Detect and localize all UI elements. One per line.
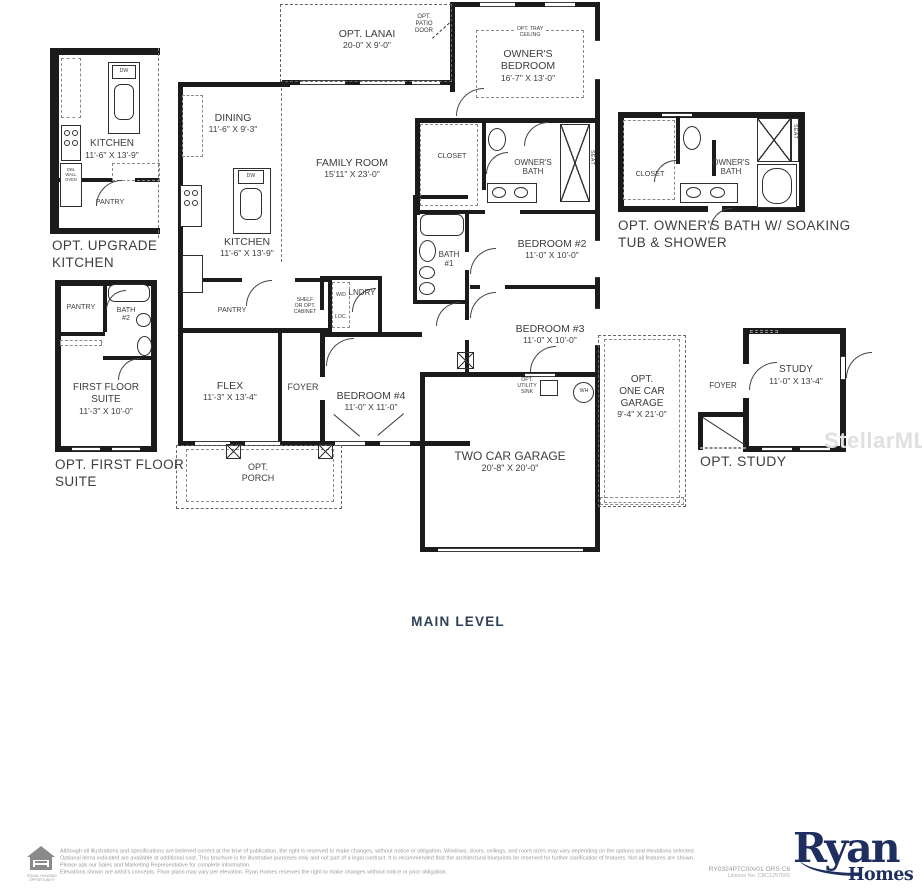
dashed-line <box>158 48 159 238</box>
wall-segment <box>103 356 153 360</box>
kitchen-label: KITCHEN 11'-6" X 13'-9" <box>220 236 274 259</box>
wall-segment <box>465 212 469 252</box>
door-swing-line <box>702 417 744 445</box>
shelf-or-opt-cabinet-label: SHELF OR OPT. CABINET <box>294 297 316 315</box>
annotation-line: CEILING <box>517 32 543 38</box>
room-name: SUITE <box>73 394 139 406</box>
wall-segment <box>57 332 105 336</box>
column-marker <box>757 118 791 162</box>
room-name: FAMILY ROOM <box>316 157 388 169</box>
room-dims: 11'-6" X 13'-9" <box>85 150 139 160</box>
fixture <box>419 240 436 262</box>
room-dims: 9'-4" X 21'-0" <box>617 409 667 419</box>
column-marker <box>560 124 590 202</box>
room-name: #2 <box>117 314 136 322</box>
window-marker <box>112 447 140 451</box>
door-arc <box>530 346 556 372</box>
equal-sign-icon <box>35 861 47 863</box>
room-name: OPT. LANAI <box>339 28 396 40</box>
opt-lanai-label: OPT. LANAI 20-0" X 9'-0" <box>339 28 396 51</box>
door-arc <box>436 302 460 326</box>
equal-housing-body <box>30 857 52 870</box>
dw-label: DW <box>120 68 129 74</box>
disclaimer-text: Elevations shown are artist's concepts. … <box>60 869 704 876</box>
annotation-line: GARAGE <box>617 398 667 410</box>
wall-segment <box>55 280 61 452</box>
dw-label: DW <box>247 173 256 179</box>
dashed-outline <box>623 120 675 200</box>
window-marker <box>545 2 575 7</box>
closet-label: CLOSET <box>438 152 467 160</box>
dashed-line <box>281 88 282 262</box>
room-name: OWNER'S <box>514 158 552 167</box>
equal-housing-roof <box>27 846 55 857</box>
opt-one-car-garage-label: OPT. ONE CAR GARAGE 9'-4" X 21'-0" <box>617 374 667 420</box>
annotation-line: OPT. <box>415 14 433 21</box>
burner-icon <box>72 140 78 146</box>
foyer-label: FOYER <box>287 382 318 393</box>
window-marker <box>595 240 600 278</box>
stellar-mls-watermark: StellarMLS <box>824 428 922 454</box>
ffs-bath2-label: BATH #2 <box>117 306 136 323</box>
caption-line: KITCHEN <box>52 255 157 272</box>
annotation-line: DOOR <box>415 28 433 35</box>
room-dims: 20'-8" X 20'-0" <box>454 463 565 474</box>
window-marker <box>841 356 845 380</box>
dashed-outline <box>332 282 350 328</box>
wd-label: W/D <box>336 292 346 298</box>
wall-segment <box>178 82 290 87</box>
fixture <box>514 187 528 198</box>
dashed-outline <box>61 58 81 118</box>
door-arc <box>118 358 140 380</box>
level-title: MAIN LEVEL <box>411 614 505 629</box>
fixture <box>686 187 701 198</box>
wall-segment <box>450 2 600 7</box>
wall-segment <box>465 270 469 320</box>
annotation-line: PATIO <box>415 21 433 28</box>
door-arc <box>326 338 354 366</box>
burner-icon <box>64 140 70 146</box>
opt-kitchen-label: KITCHEN 11'-6" X 13'-9" <box>85 138 139 160</box>
caption-line: OPT. FIRST FLOOR <box>55 457 184 474</box>
fixture <box>762 168 792 204</box>
dbl-wall-oven-label: DBL WALL OVEN <box>61 168 81 182</box>
bedroom2-label: BEDROOM #2 11'-0" X 10'-0" <box>518 238 587 261</box>
burner-icon <box>192 200 198 206</box>
room-name: BEDROOM <box>501 60 555 72</box>
room-name: BATH <box>439 250 460 259</box>
dashed-outline <box>182 95 203 157</box>
opt-upgrade-kitchen-caption: OPT. UPGRADE KITCHEN <box>52 238 157 272</box>
study-label: STUDY 11'-0" X 13'-4" <box>769 364 823 386</box>
room-name: STUDY <box>769 364 823 376</box>
room-name: KITCHEN <box>85 138 139 150</box>
flex-label: FLEX 11'-3" X 13'-4" <box>203 380 257 403</box>
door-swing-line <box>377 413 404 436</box>
window-marker <box>72 447 100 451</box>
annotation-line: OVEN <box>61 178 81 183</box>
opt-porch-label: OPT. PORCH <box>242 462 275 483</box>
room-name: FLEX <box>203 380 257 392</box>
fixture <box>240 188 262 220</box>
door-arc <box>524 122 548 146</box>
room-dims: 16'-7" X 13'-0" <box>501 73 555 83</box>
annotation-line: CABINET <box>294 309 316 315</box>
owners-bath-label: OWNER'S BATH <box>514 158 552 177</box>
dashed-outline <box>420 124 478 206</box>
wall-segment <box>698 412 748 417</box>
wall-segment <box>413 195 417 303</box>
wall-segment <box>50 48 160 55</box>
fixture <box>540 380 558 396</box>
room-dims: 11'-0" X 10'-0" <box>516 335 585 345</box>
column-marker <box>318 444 333 459</box>
wall-segment <box>415 118 599 123</box>
wall-segment <box>320 332 422 337</box>
room-name: BATH <box>712 167 750 176</box>
opt-tray-ceiling-label: OPT. TRAY CEILING <box>514 26 546 38</box>
room-name: BEDROOM #4 <box>337 390 406 402</box>
window-marker <box>480 2 515 7</box>
fixture <box>137 336 152 356</box>
room-name: DINING <box>209 112 258 124</box>
annotation-line: OPT. <box>617 374 667 386</box>
room-dims: 11'-0" X 13'-4" <box>769 376 823 386</box>
wall-segment <box>482 120 486 190</box>
room-name: BATH <box>514 167 552 176</box>
laundry-label: LNDRY <box>349 288 376 297</box>
window-marker <box>438 548 583 552</box>
opt-pantry-label: PANTRY <box>96 198 125 206</box>
first-floor-suite-label: FIRST FLOOR SUITE 11'-3" X 10'-0" <box>73 382 139 416</box>
column-marker <box>226 444 241 459</box>
room-dims: 15'11" X 23'-0" <box>316 169 388 179</box>
wall-segment <box>151 280 157 452</box>
bedroom3-label: BEDROOM #3 11'-0" X 10'-0" <box>516 323 585 346</box>
wall-segment <box>278 332 282 441</box>
room-name: BEDROOM #2 <box>518 238 587 250</box>
wall-segment <box>520 210 599 214</box>
burner-icon <box>184 200 190 206</box>
two-car-garage-label: TWO CAR GARAGE 20'-8" X 20'-0" <box>454 449 565 474</box>
pantry-label: PANTRY <box>218 306 247 314</box>
wall-segment <box>55 446 157 452</box>
column-marker <box>457 352 474 369</box>
annotation-line: PORCH <box>242 473 275 484</box>
room-dims: 11'-6" X 9'-3" <box>209 124 258 134</box>
wall-segment <box>743 328 749 364</box>
wall-segment <box>799 112 805 212</box>
fixture <box>420 214 464 236</box>
fixture <box>182 255 203 293</box>
room-dims: 11'-0" X 10'-0" <box>518 250 587 260</box>
room-dims: 11'-3" X 10'-0" <box>73 406 139 416</box>
plan-code-block: RY0324PTC00v01 ORS C6 License No. CBC125… <box>650 866 790 879</box>
dashed-outline <box>750 330 778 333</box>
caption-line: SUITE <box>55 474 184 491</box>
dining-label: DINING 11'-6" X 9'-3" <box>209 112 258 135</box>
disclaimer-paragraph-2: Elevations shown are artist's concepts. … <box>60 869 720 879</box>
opt-owners-bath-caption: OPT. OWNER'S BATH W/ SOAKING TUB & SHOWE… <box>618 218 851 252</box>
opt-patio-door-label: OPT. PATIO DOOR <box>415 14 433 35</box>
room-name: KITCHEN <box>220 236 274 248</box>
license-number: License No. CBC1257565 <box>650 873 790 879</box>
dashed-outline <box>600 497 684 505</box>
wall-segment <box>420 374 425 552</box>
room-name: OWNER'S <box>501 48 555 60</box>
ryan-homes-logo: Ryan Homes <box>793 828 921 886</box>
plan-code: RY0324PTC00v01 ORS C6 <box>650 866 790 873</box>
brand-homes: Homes <box>848 865 913 885</box>
room-name: FIRST FLOOR <box>73 382 139 394</box>
bedroom4-label: BEDROOM #4 11'-0" X 11'-0" <box>337 390 406 413</box>
dashed-outline <box>60 340 102 346</box>
caption-line: OPT. UPGRADE <box>52 238 157 255</box>
fixture <box>683 126 701 150</box>
caption-line: TUB & SHOWER <box>618 235 851 252</box>
door-swing-line <box>333 414 360 437</box>
wall-segment <box>420 372 599 377</box>
annotation-line: ONE CAR <box>617 386 667 398</box>
opt-first-floor-suite-caption: OPT. FIRST FLOOR SUITE <box>55 457 184 491</box>
fixture <box>419 266 435 279</box>
opt-study-foyer-label: FOYER <box>709 381 737 390</box>
burner-icon <box>64 130 70 136</box>
fixture <box>136 313 151 327</box>
opt-seat-label: SEAT <box>792 124 798 139</box>
wall-segment <box>378 276 382 336</box>
equal-housing-caption: EQUAL HOUSING OPPORTUNITY <box>22 874 62 883</box>
fixture <box>419 282 435 295</box>
wall-segment <box>295 278 332 282</box>
fixture <box>710 187 725 198</box>
wd-loc-label: LOC. <box>335 314 347 320</box>
door-arc <box>470 292 496 318</box>
disclaimer-paragraph-1: Although all illustrations and specifica… <box>60 848 720 868</box>
room-name: #1 <box>439 259 460 268</box>
fixture <box>492 187 506 198</box>
wall-segment <box>58 228 160 234</box>
annotation-line: OPT. <box>242 462 275 473</box>
door-arc <box>246 280 272 306</box>
burner-icon <box>192 190 198 196</box>
room-dims: 20-0" X 9'-0" <box>339 40 396 50</box>
dashed-outline <box>112 163 160 181</box>
wall-segment <box>50 48 59 234</box>
opt-utility-sink-label: OPT. UTILITY SINK <box>517 377 536 395</box>
bath1-label: BATH #1 <box>439 250 460 269</box>
window-marker <box>762 447 792 451</box>
water-heater-label: WH <box>580 388 589 394</box>
floor-plan-page: WH OPT. LANAI 20-0" X 9'-0" OPT. PATIO D… <box>0 0 922 888</box>
seat-label: SEAT <box>589 150 595 165</box>
ffs-pantry-label: PANTRY <box>67 303 96 311</box>
wall-segment <box>470 285 480 289</box>
room-name: OWNER'S <box>712 158 750 167</box>
door-arc <box>470 248 496 274</box>
disclaimer-text: Although all illustrations and specifica… <box>60 848 704 868</box>
room-name: TWO CAR GARAGE <box>454 449 565 463</box>
opt-closet-label: CLOSET <box>636 170 665 178</box>
opt-study-caption: OPT. STUDY <box>700 453 786 471</box>
owners-bedroom-label: OWNER'S BEDROOM 16'-7" X 13'-0" <box>501 48 555 83</box>
opt-owners-bath-label: OWNER'S BATH <box>712 158 750 177</box>
burner-icon <box>184 190 190 196</box>
caption-line: OPT. OWNER'S BATH W/ SOAKING <box>618 218 851 235</box>
wall-segment <box>320 337 325 377</box>
door-arc <box>456 88 484 116</box>
wall-segment <box>618 206 708 212</box>
room-dims: 11'-3" X 13'-4" <box>203 392 257 402</box>
burner-icon <box>72 130 78 136</box>
fixture <box>114 84 134 120</box>
window-marker <box>380 441 410 446</box>
dashed-outline <box>604 339 680 503</box>
family-room-label: FAMILY ROOM 15'11" X 23'-0" <box>316 157 388 180</box>
wall-segment <box>505 285 599 289</box>
room-dims: 11'-0" X 11'-0" <box>337 402 406 412</box>
wall-segment <box>676 116 680 164</box>
room-name: BEDROOM #3 <box>516 323 585 335</box>
door-arc <box>486 152 508 174</box>
annotation-line: SINK <box>517 389 536 395</box>
fixture <box>488 128 506 151</box>
equal-housing-logo <box>27 846 57 874</box>
wall-segment <box>320 400 325 442</box>
door-arc <box>846 352 872 378</box>
room-dims: 11'-6" X 13'-9" <box>220 248 274 258</box>
wall-segment <box>178 328 332 333</box>
dashed-outline <box>700 447 746 449</box>
window-marker <box>595 40 600 80</box>
